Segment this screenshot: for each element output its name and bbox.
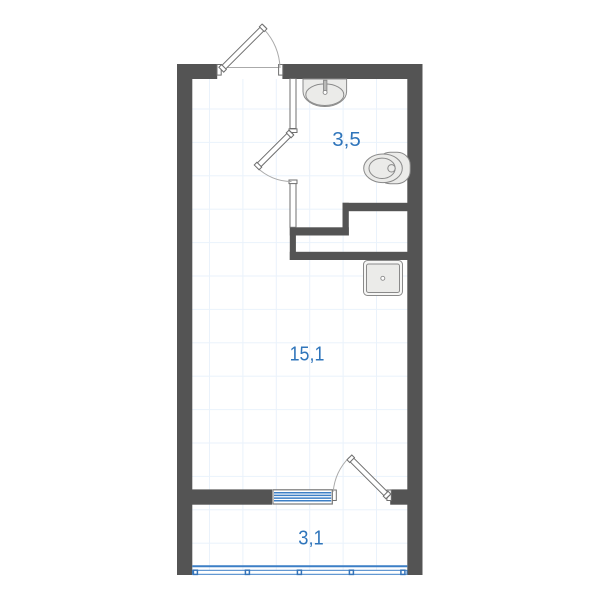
svg-text:15,1: 15,1	[290, 343, 325, 366]
svg-text:3,5: 3,5	[332, 128, 361, 151]
svg-text:3,1: 3,1	[298, 526, 324, 549]
